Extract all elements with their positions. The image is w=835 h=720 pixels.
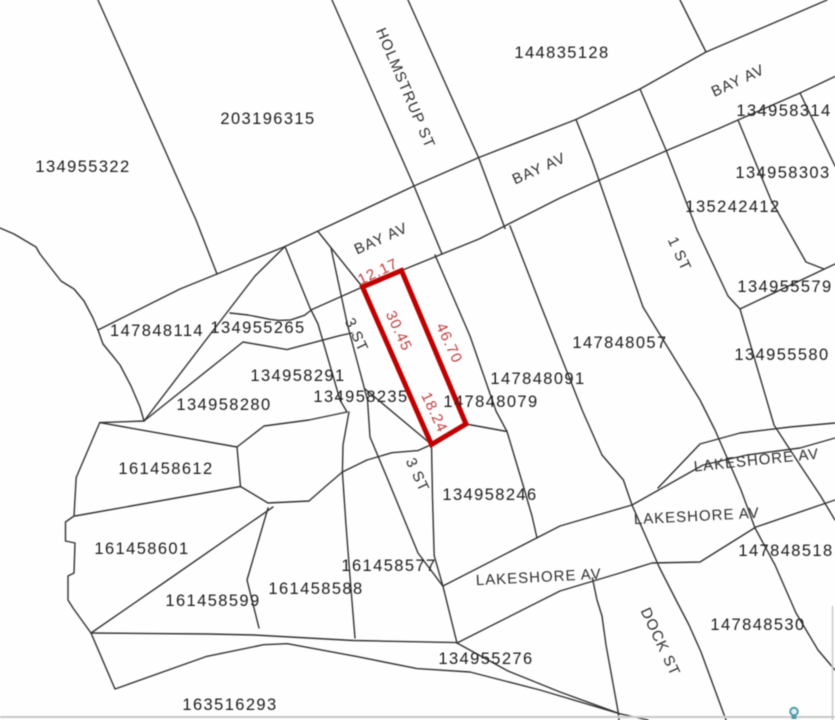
svg-text:161458599: 161458599 bbox=[165, 592, 260, 610]
svg-text:134955580: 134955580 bbox=[734, 346, 829, 364]
svg-text:161458577: 161458577 bbox=[341, 557, 436, 575]
svg-text:147848091: 147848091 bbox=[490, 370, 585, 388]
svg-text:134958291: 134958291 bbox=[250, 367, 345, 385]
svg-text:161458612: 161458612 bbox=[118, 460, 213, 478]
svg-text:161458588: 161458588 bbox=[268, 580, 363, 598]
svg-text:134955265: 134955265 bbox=[210, 319, 305, 337]
svg-text:134958235: 134958235 bbox=[313, 388, 408, 406]
svg-text:134958303: 134958303 bbox=[735, 164, 830, 182]
svg-text:134958246: 134958246 bbox=[442, 486, 537, 504]
svg-text:134958280: 134958280 bbox=[176, 396, 271, 414]
svg-text:135242412: 135242412 bbox=[685, 198, 780, 216]
svg-text:203196315: 203196315 bbox=[220, 110, 315, 128]
svg-text:161458601: 161458601 bbox=[94, 540, 189, 558]
svg-text:163516293: 163516293 bbox=[182, 696, 277, 714]
svg-text:147848057: 147848057 bbox=[572, 334, 667, 352]
svg-text:147848114: 147848114 bbox=[110, 322, 204, 340]
svg-text:134955322: 134955322 bbox=[35, 158, 130, 176]
svg-text:134955276: 134955276 bbox=[438, 650, 533, 668]
svg-text:147848530: 147848530 bbox=[710, 616, 805, 634]
svg-text:147848079: 147848079 bbox=[443, 393, 538, 411]
svg-text:134955579: 134955579 bbox=[737, 278, 832, 296]
svg-text:134958314: 134958314 bbox=[736, 102, 831, 120]
svg-text:147848518: 147848518 bbox=[738, 542, 833, 560]
svg-text:144835128: 144835128 bbox=[514, 44, 609, 62]
